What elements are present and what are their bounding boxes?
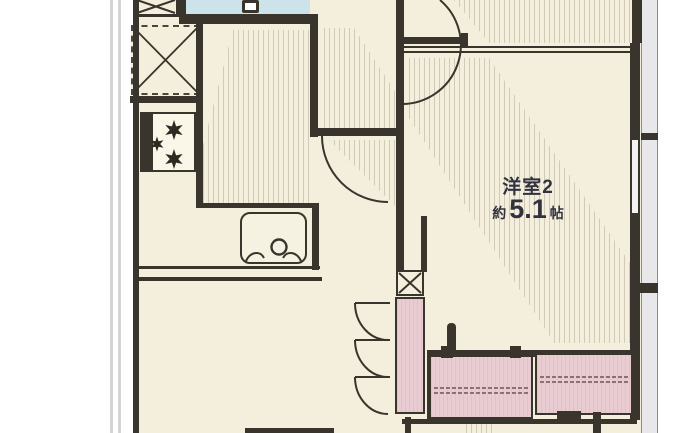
strip-cap	[641, 133, 658, 140]
kitchen-boundary-line	[136, 277, 322, 281]
closet	[535, 353, 633, 415]
outside-corridor-strip	[641, 0, 658, 433]
door-leaf-bar	[397, 37, 468, 44]
window	[630, 140, 640, 213]
bottom-wall-line	[402, 419, 637, 424]
counter-front-line	[136, 266, 320, 269]
gas-stove	[140, 112, 196, 172]
room-divider-wall	[404, 46, 632, 48]
hanger-pipe-line	[540, 381, 628, 383]
floor-plan: 洋室2 約 5.1 帖	[0, 0, 700, 433]
door-latch-icon	[242, 0, 259, 13]
balcony-edge-line	[110, 0, 113, 433]
hanger-pipe-line	[434, 387, 528, 389]
room-divider-wall	[404, 51, 632, 53]
right-wall-top	[632, 0, 642, 43]
size-value: 5.1	[509, 194, 547, 225]
stove-grill	[142, 114, 153, 170]
counter-back-wall	[196, 203, 318, 208]
size-prefix: 約	[492, 203, 506, 223]
wall-stub	[405, 417, 411, 433]
kitchen-wall	[130, 96, 203, 103]
refrigerator-space	[131, 25, 200, 95]
duct-wall	[421, 216, 427, 272]
strip-cap	[630, 283, 658, 293]
wall-post	[557, 411, 581, 419]
hanger-pipe-line	[540, 376, 628, 378]
wall-stub	[593, 412, 601, 433]
kitchen-side-wall	[196, 18, 203, 207]
hallway-left-wall	[310, 14, 318, 137]
left-outer-wall	[133, 0, 139, 433]
balcony-edge-line	[118, 0, 121, 433]
counter-side-wall	[312, 203, 319, 270]
wall-post	[510, 346, 521, 358]
washing-machine-space	[133, 0, 179, 17]
pipe-space	[396, 270, 424, 296]
fixture-edge	[245, 428, 334, 433]
closet-panel	[395, 297, 425, 414]
hallway-bottom-wall	[312, 128, 404, 136]
kitchen-sink	[240, 212, 307, 264]
door-stop	[447, 323, 456, 357]
room2-size-label: 約 5.1 帖	[448, 194, 608, 225]
size-unit: 帖	[550, 203, 564, 223]
hanger-pipe-line	[434, 392, 528, 394]
